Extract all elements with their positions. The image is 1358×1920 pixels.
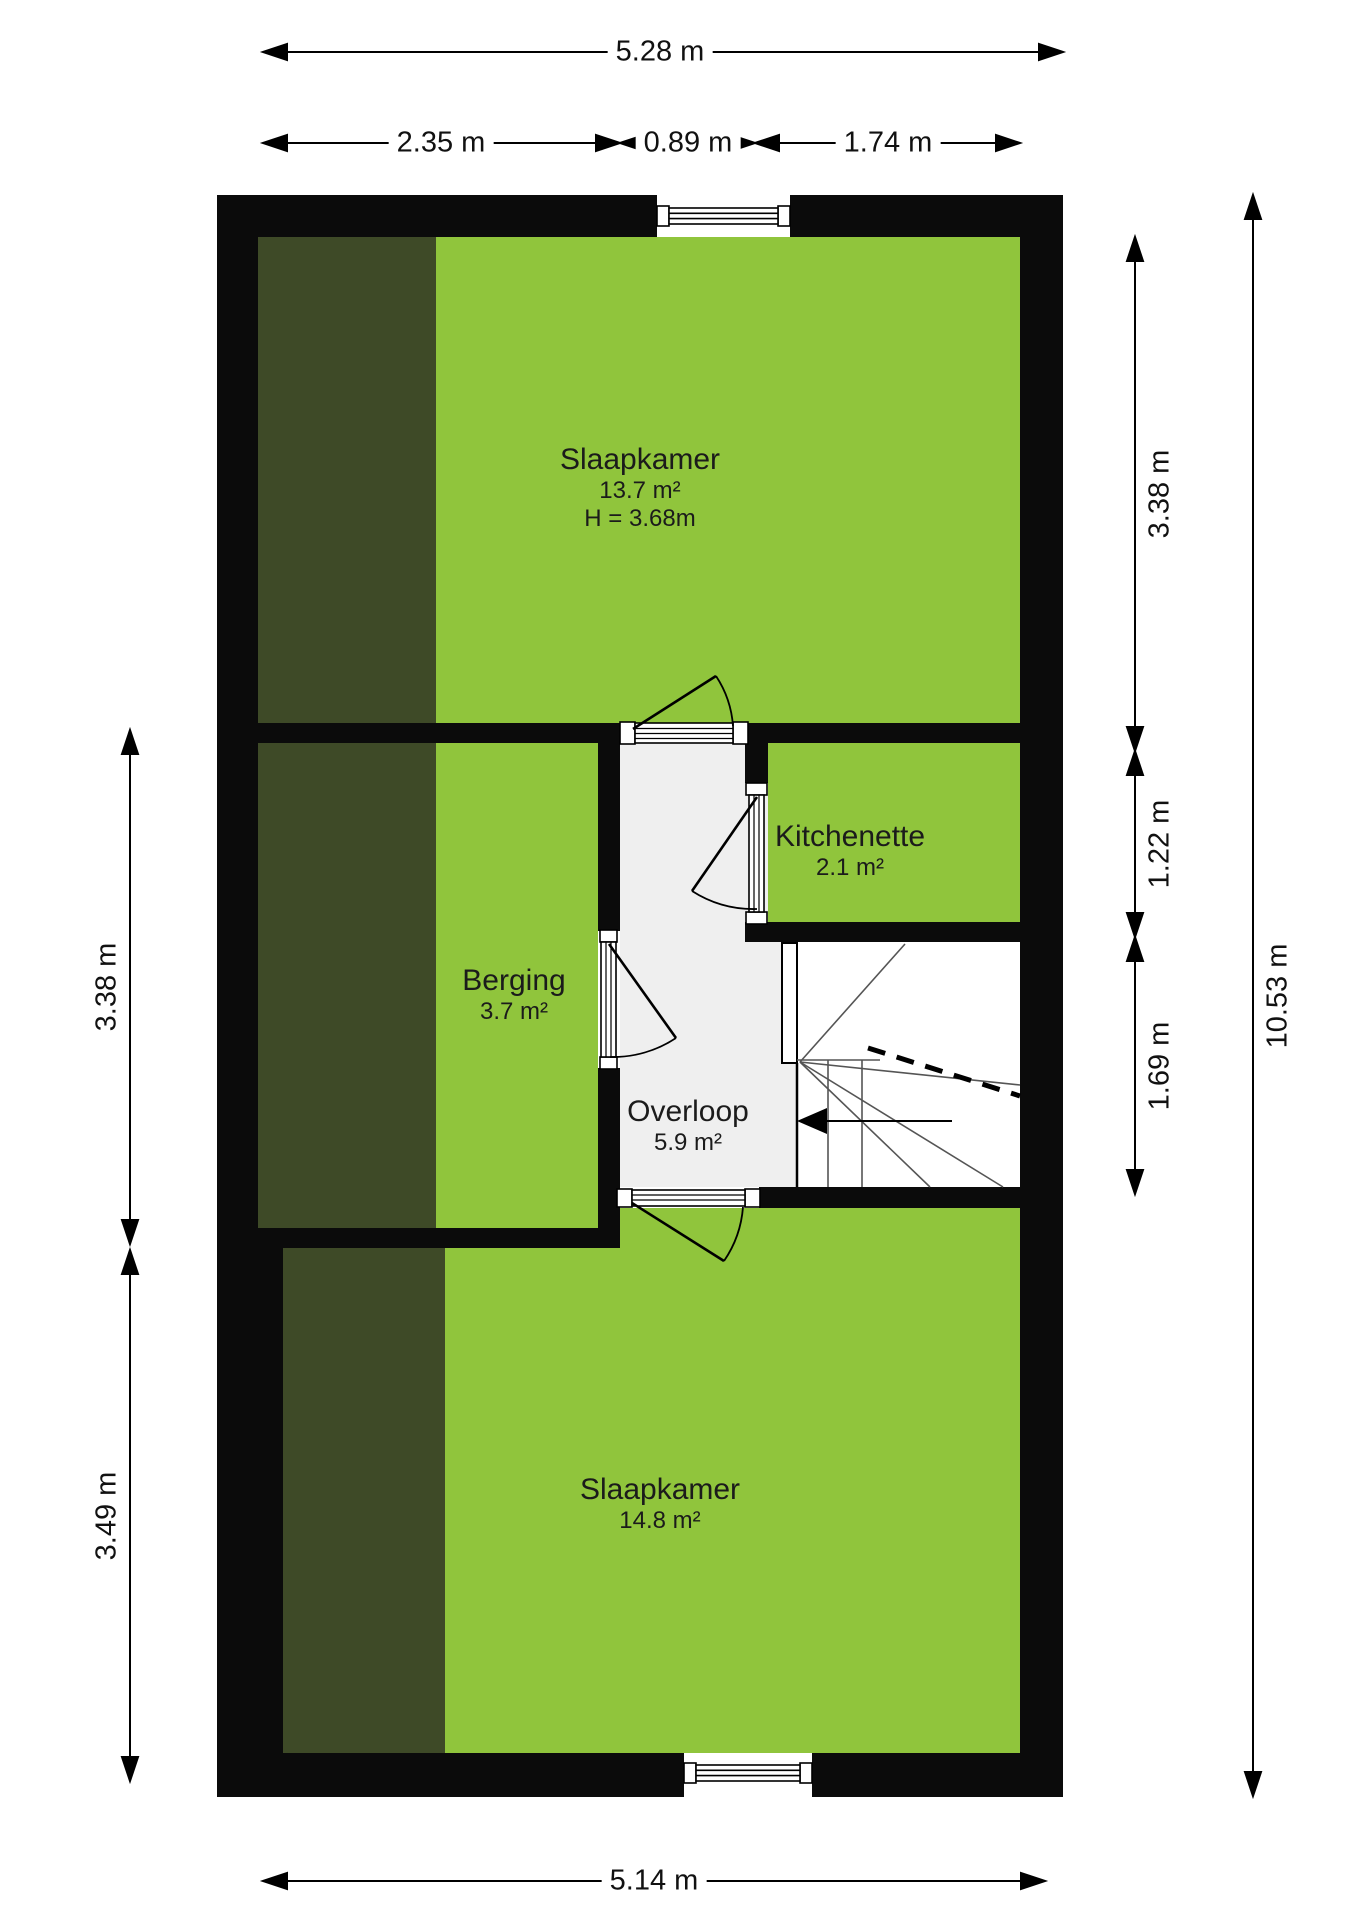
berging-label: Berging 3.7 m² [462,964,565,1026]
dim-right-2: 1.22 m [1143,792,1178,897]
dim-top-seg-1: 2.35 m [389,126,494,161]
dim-bottom-total: 5.14 m [602,1864,707,1899]
kitchenette-name: Kitchenette [775,820,925,854]
dim-top-total: 5.28 m [608,35,713,70]
plan-linework [0,0,1358,1920]
bedroom-top-name: Slaapkamer [560,443,720,477]
dim-left-2: 3.49 m [90,1464,125,1569]
floor-plan: Slaapkamer 13.7 m² H = 3.68m Kitchenette… [0,0,1358,1920]
bedroom-bottom-label: Slaapkamer 14.8 m² [580,1473,740,1535]
bedroom-top-height: H = 3.68m [560,505,720,533]
staircase [782,943,1020,1187]
bedroom-bottom-door-icon [617,1189,760,1261]
dim-right-total: 10.53 m [1261,936,1296,1057]
bedroom-bottom-name: Slaapkamer [580,1473,740,1507]
dim-left-1: 3.38 m [90,935,125,1040]
kitchenette-door-icon [692,783,767,924]
kitchenette-label: Kitchenette 2.1 m² [775,820,925,882]
stair-direction-arrow-icon [797,1108,952,1134]
dim-top-seg-2: 0.89 m [636,126,741,161]
kitchenette-area: 2.1 m² [775,854,925,882]
overloop-name: Overloop [627,1095,749,1129]
berging-name: Berging [462,964,565,998]
bedroom-top-door-icon [620,676,748,744]
dimension-lines [122,44,1261,1889]
berging-area: 3.7 m² [462,998,565,1026]
bottom-window-icon [684,1763,812,1783]
bedroom-top-label: Slaapkamer 13.7 m² H = 3.68m [560,443,720,533]
dim-right-3: 1.69 m [1143,1014,1178,1119]
bedroom-top-area: 13.7 m² [560,477,720,505]
dim-right-1: 3.38 m [1143,442,1178,547]
bedroom-bottom-area: 14.8 m² [580,1507,740,1535]
overloop-area: 5.9 m² [627,1129,749,1157]
overloop-label: Overloop 5.9 m² [627,1095,749,1157]
dim-top-seg-3: 1.74 m [836,126,941,161]
top-window-icon [657,206,790,226]
berging-door-icon [600,930,676,1069]
